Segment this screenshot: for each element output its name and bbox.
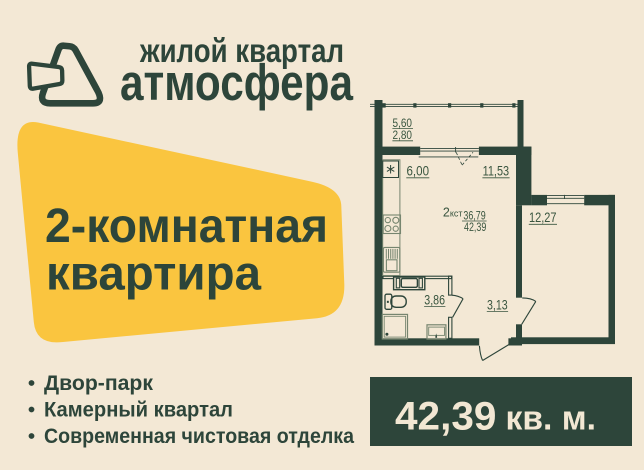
svg-text:36,79: 36,79: [463, 210, 485, 222]
svg-text:2-комнатная: 2-комнатная: [45, 200, 328, 253]
svg-text:42,39: 42,39: [395, 395, 497, 439]
svg-text:2кст: 2кст: [443, 205, 463, 219]
svg-text:кв. м.: кв. м.: [506, 400, 597, 438]
svg-text:Современная чистовая отделка: Современная чистовая отделка: [44, 425, 354, 448]
svg-text:11,53: 11,53: [483, 163, 510, 179]
svg-text:42,39: 42,39: [464, 222, 486, 234]
svg-text:2,80: 2,80: [393, 130, 413, 142]
svg-text:атмосфера: атмосфера: [120, 54, 354, 111]
svg-text:3,86: 3,86: [424, 292, 445, 307]
svg-text:6,00: 6,00: [407, 163, 430, 179]
svg-text:Двор-парк: Двор-парк: [44, 372, 153, 395]
svg-text:квартира: квартира: [46, 247, 261, 300]
svg-text:5,60: 5,60: [393, 118, 413, 130]
svg-text:12,27: 12,27: [529, 209, 557, 225]
svg-text:Камерный квартал: Камерный квартал: [44, 399, 233, 422]
svg-text:3,13: 3,13: [487, 297, 508, 312]
